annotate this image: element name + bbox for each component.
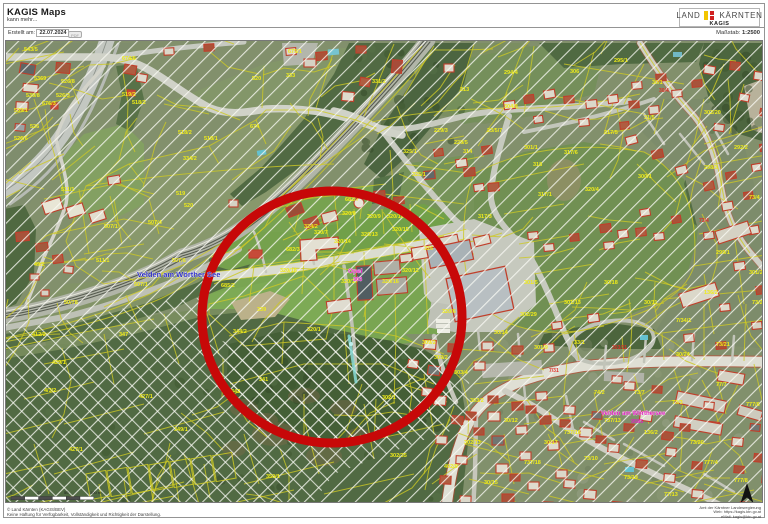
svg-text:317/6: 317/6 bbox=[564, 150, 578, 156]
svg-text:30/15: 30/15 bbox=[484, 480, 498, 486]
svg-text:518/1: 518/1 bbox=[204, 136, 218, 142]
svg-text:25: 25 bbox=[37, 490, 42, 495]
svg-text:301/9: 301/9 bbox=[534, 345, 548, 351]
svg-text:341: 341 bbox=[259, 377, 268, 383]
svg-text:317/1: 317/1 bbox=[538, 192, 552, 198]
svg-text:49/2: 49/2 bbox=[34, 262, 45, 268]
svg-text:320/8: 320/8 bbox=[342, 211, 356, 217]
svg-text:777/6: 777/6 bbox=[746, 402, 760, 408]
svg-text:320/12: 320/12 bbox=[402, 268, 419, 274]
svg-text:737/18: 737/18 bbox=[524, 460, 541, 466]
svg-text:302/35: 302/35 bbox=[390, 453, 407, 459]
svg-text:74/2: 74/2 bbox=[594, 390, 605, 396]
svg-text:303: 303 bbox=[353, 277, 362, 283]
svg-text:320/15: 320/15 bbox=[392, 227, 409, 233]
svg-text:511/1: 511/1 bbox=[96, 258, 109, 264]
svg-text:30/14: 30/14 bbox=[494, 330, 509, 336]
svg-text:539/8: 539/8 bbox=[26, 93, 40, 99]
svg-text:350/1: 350/1 bbox=[266, 474, 280, 480]
svg-text:331/2: 331/2 bbox=[372, 79, 386, 85]
svg-text:402/9: 402/9 bbox=[444, 464, 458, 470]
svg-text:320/9: 320/9 bbox=[367, 214, 381, 220]
svg-text:229/5: 229/5 bbox=[454, 140, 468, 146]
svg-text:30/17: 30/17 bbox=[544, 440, 558, 446]
svg-text:518/2: 518/2 bbox=[178, 130, 192, 136]
svg-text:30/24: 30/24 bbox=[676, 352, 691, 358]
svg-text:301/1: 301/1 bbox=[524, 145, 538, 151]
svg-text:349/1: 349/1 bbox=[174, 427, 188, 433]
svg-text:73/10: 73/10 bbox=[584, 456, 598, 462]
svg-text:314: 314 bbox=[463, 149, 473, 155]
svg-text:23/5/7: 23/5/7 bbox=[487, 128, 502, 134]
svg-text:73/20: 73/20 bbox=[690, 440, 704, 446]
svg-text:303/11: 303/11 bbox=[612, 345, 627, 351]
svg-text:229/3: 229/3 bbox=[434, 128, 448, 134]
svg-text:320/16: 320/16 bbox=[382, 279, 399, 285]
svg-text:520: 520 bbox=[184, 203, 193, 209]
svg-text:339: 339 bbox=[257, 307, 266, 313]
svg-text:682/3: 682/3 bbox=[286, 247, 300, 253]
svg-text:294/4: 294/4 bbox=[504, 70, 519, 76]
svg-text:7/31: 7/31 bbox=[549, 368, 559, 374]
svg-text:526/6: 526/6 bbox=[14, 136, 28, 142]
svg-text:334/2: 334/2 bbox=[183, 156, 197, 162]
svg-text:73/19: 73/19 bbox=[624, 475, 638, 481]
svg-text:320/14: 320/14 bbox=[334, 239, 352, 245]
svg-text:427/1: 427/1 bbox=[139, 394, 153, 400]
svg-text:507/4: 507/4 bbox=[148, 220, 163, 226]
svg-text:33/1: 33/1 bbox=[574, 340, 585, 346]
svg-text:520: 520 bbox=[252, 76, 261, 82]
svg-text:313: 313 bbox=[460, 87, 469, 93]
svg-text:302/20: 302/20 bbox=[704, 110, 721, 116]
svg-text:320/7: 320/7 bbox=[314, 230, 328, 236]
svg-text:777/8: 777/8 bbox=[734, 478, 748, 484]
svg-text:324/2: 324/2 bbox=[304, 224, 318, 230]
svg-text:685/2: 685/2 bbox=[221, 283, 235, 289]
svg-text:347: 347 bbox=[119, 332, 128, 338]
svg-text:333: 333 bbox=[286, 73, 295, 79]
svg-text:318: 318 bbox=[533, 162, 542, 168]
svg-text:73/3: 73/3 bbox=[672, 400, 683, 406]
svg-text:73/4: 73/4 bbox=[749, 195, 761, 201]
svg-text:7/34/1: 7/34/1 bbox=[676, 318, 691, 324]
svg-text:507/6: 507/6 bbox=[172, 258, 186, 264]
svg-text:519: 519 bbox=[176, 191, 185, 197]
svg-text:301/5: 301/5 bbox=[524, 280, 538, 286]
svg-text:136/2: 136/2 bbox=[644, 430, 658, 436]
svg-text:675/1: 675/1 bbox=[288, 49, 302, 55]
svg-text:682/7: 682/7 bbox=[345, 197, 359, 203]
svg-text:295/1: 295/1 bbox=[614, 58, 628, 64]
svg-text:518/2: 518/2 bbox=[132, 100, 146, 106]
svg-text:31/5: 31/5 bbox=[644, 115, 655, 121]
svg-text:507/1: 507/1 bbox=[134, 282, 148, 288]
svg-text:543/5: 543/5 bbox=[24, 47, 38, 53]
svg-text:301/22: 301/22 bbox=[749, 270, 763, 276]
svg-text:507/1: 507/1 bbox=[104, 224, 118, 230]
svg-text:73/4: 73/4 bbox=[699, 218, 709, 224]
svg-text:737/16: 737/16 bbox=[564, 430, 581, 436]
svg-text:301/13: 301/13 bbox=[564, 300, 581, 306]
svg-text:4/3/2: 4/3/2 bbox=[44, 388, 56, 394]
svg-text:73/21: 73/21 bbox=[716, 342, 730, 348]
svg-text:30/12: 30/12 bbox=[504, 418, 518, 424]
svg-text:344/2: 344/2 bbox=[233, 329, 247, 335]
svg-text:302/29: 302/29 bbox=[520, 312, 537, 318]
svg-text:136/2: 136/2 bbox=[704, 290, 718, 296]
svg-text:302/13: 302/13 bbox=[464, 440, 481, 446]
svg-text:303/2: 303/2 bbox=[470, 398, 484, 404]
svg-text:320/4: 320/4 bbox=[585, 187, 600, 193]
svg-text:77/7: 77/7 bbox=[716, 382, 727, 388]
svg-text:73/7: 73/7 bbox=[634, 390, 645, 396]
svg-text:737/13: 737/13 bbox=[604, 418, 621, 424]
svg-text:777/4: 777/4 bbox=[704, 460, 719, 466]
svg-text:5369: 5369 bbox=[34, 76, 46, 82]
svg-text:302/1: 302/1 bbox=[382, 395, 396, 401]
svg-text:9585: 9585 bbox=[631, 419, 643, 425]
svg-text:676/3: 676/3 bbox=[42, 101, 56, 107]
svg-text:50: 50 bbox=[64, 490, 69, 495]
svg-text:526: 526 bbox=[30, 124, 39, 130]
svg-text:Velden am Wörther See: Velden am Wörther See bbox=[137, 270, 220, 279]
svg-text:317/5: 317/5 bbox=[604, 130, 618, 136]
svg-text:320/1: 320/1 bbox=[307, 327, 321, 333]
svg-text:30/4: 30/4 bbox=[659, 88, 669, 94]
svg-text:Opel: Opel bbox=[348, 268, 363, 275]
svg-text:306: 306 bbox=[570, 69, 579, 75]
svg-text:50/78: 50/78 bbox=[64, 300, 78, 306]
svg-text:292/2: 292/2 bbox=[734, 145, 748, 151]
svg-text:526/3: 526/3 bbox=[56, 93, 70, 99]
svg-text:519/2: 519/2 bbox=[122, 92, 136, 98]
svg-text:30/1: 30/1 bbox=[652, 80, 663, 86]
svg-text:Velden am Wörthersee: Velden am Wörthersee bbox=[601, 411, 666, 417]
svg-text:100 m: 100 m bbox=[90, 490, 102, 495]
svg-text:326: 326 bbox=[424, 246, 433, 252]
svg-text:320/13: 320/13 bbox=[361, 232, 378, 238]
svg-text:304/8: 304/8 bbox=[504, 104, 518, 110]
svg-text:674: 674 bbox=[250, 124, 260, 130]
svg-text:30/11: 30/11 bbox=[644, 300, 657, 306]
svg-text:298/3: 298/3 bbox=[704, 165, 718, 171]
svg-text:320/18: 320/18 bbox=[280, 268, 297, 274]
svg-text:309/2: 309/2 bbox=[434, 355, 448, 361]
svg-text:539/1: 539/1 bbox=[14, 108, 28, 114]
svg-text:674/6: 674/6 bbox=[122, 56, 136, 62]
svg-text:320/6: 320/6 bbox=[442, 309, 456, 315]
svg-text:526/8: 526/8 bbox=[61, 79, 75, 85]
svg-text:325/1: 325/1 bbox=[412, 172, 426, 178]
svg-text:300/1: 300/1 bbox=[638, 174, 652, 180]
svg-text:429/1: 429/1 bbox=[52, 360, 66, 366]
svg-text:511/1: 511/1 bbox=[61, 187, 74, 193]
svg-text:77/13: 77/13 bbox=[664, 492, 678, 498]
svg-text:427/1: 427/1 bbox=[69, 447, 83, 453]
svg-text:30/18: 30/18 bbox=[604, 280, 618, 286]
svg-text:325/1: 325/1 bbox=[403, 149, 417, 155]
svg-text:299/1: 299/1 bbox=[716, 250, 730, 256]
svg-text:412/2: 412/2 bbox=[32, 332, 46, 338]
svg-text:309/2: 309/2 bbox=[422, 340, 436, 346]
svg-text:317/3: 317/3 bbox=[478, 214, 492, 220]
svg-text:303/4: 303/4 bbox=[454, 370, 469, 376]
svg-text:73/2: 73/2 bbox=[752, 300, 763, 306]
